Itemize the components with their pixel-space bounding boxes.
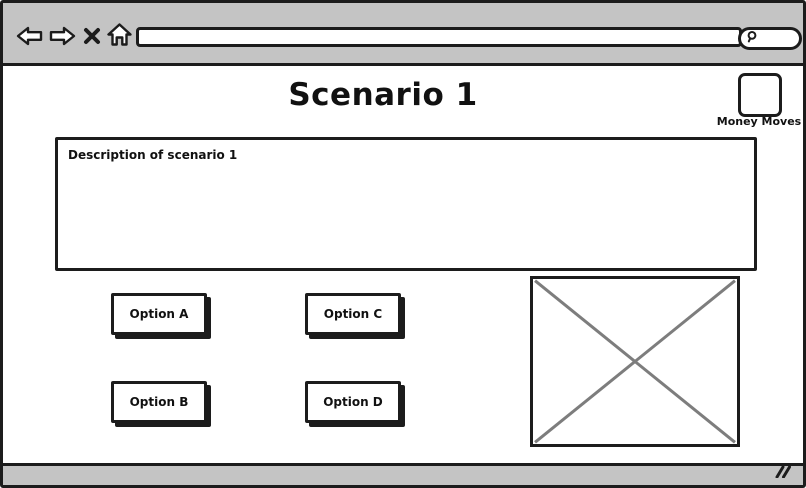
back-arrow-icon <box>16 26 46 46</box>
search-icon <box>745 29 759 48</box>
image-placeholder <box>530 276 740 447</box>
description-textarea[interactable]: Description of scenario 1 <box>55 137 757 271</box>
stop-button[interactable] <box>83 25 103 47</box>
option-a-button[interactable]: Option A <box>111 293 207 335</box>
status-bar <box>3 463 803 485</box>
page-title: Scenario 1 <box>3 77 763 113</box>
home-icon <box>107 23 137 46</box>
option-c-button[interactable]: Option C <box>305 293 401 335</box>
option-d-button[interactable]: Option D <box>305 381 401 423</box>
back-button[interactable] <box>16 25 46 47</box>
resize-grip[interactable] <box>775 463 793 482</box>
image-x-icon <box>533 279 737 444</box>
option-b-button[interactable]: Option B <box>111 381 207 423</box>
forward-arrow-icon <box>49 26 79 46</box>
browser-toolbar <box>3 3 803 66</box>
forward-button[interactable] <box>49 25 79 47</box>
money-moves-label: Money Moves <box>704 115 806 128</box>
money-moves-checkbox[interactable] <box>738 73 782 117</box>
search-input[interactable] <box>738 27 802 50</box>
browser-window: Scenario 1 Money Moves Description of sc… <box>0 0 806 488</box>
address-input[interactable] <box>136 27 742 47</box>
x-icon <box>83 27 103 45</box>
home-button[interactable] <box>107 23 137 45</box>
